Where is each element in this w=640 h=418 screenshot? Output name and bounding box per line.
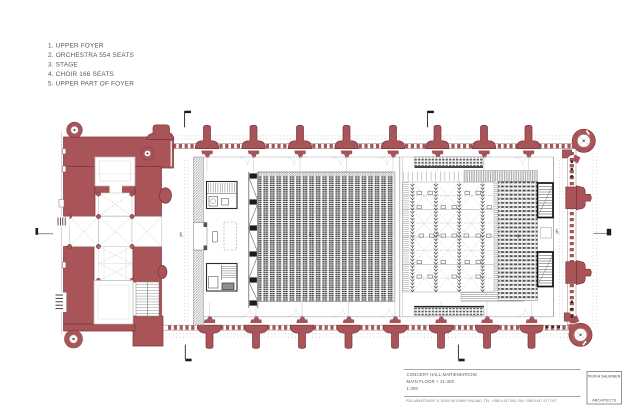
svg-text:3. STAGE: 3. STAGE: [48, 62, 78, 69]
svg-text:5.: 5.: [180, 233, 184, 239]
svg-text:CONCERT HALL MARIENKIRCHE: CONCERT HALL MARIENKIRCHE: [407, 372, 478, 377]
svg-text:PEKKA SALMINEN: PEKKA SALMINEN: [588, 375, 621, 379]
svg-text:4.: 4.: [517, 234, 521, 240]
svg-text:5.: 5.: [556, 230, 560, 236]
svg-text:4. CHOIR 166 SEATS: 4. CHOIR 166 SEATS: [48, 71, 114, 78]
svg-text:PSA-ARKKITEHDIT 8, 00100 HELSI: PSA-ARKKITEHDIT 8, 00100 HELSINKI FINLAN…: [406, 399, 557, 403]
svg-text:3.: 3.: [436, 232, 440, 238]
svg-text:5. UPPER PART OF FOYER: 5. UPPER PART OF FOYER: [48, 81, 134, 88]
svg-text:1. UPPER FOYER: 1. UPPER FOYER: [48, 43, 104, 50]
svg-text:2.: 2.: [309, 232, 313, 238]
svg-text:1:300: 1:300: [407, 386, 419, 391]
svg-text:MAIN FLOOR + 21.300: MAIN FLOOR + 21.300: [407, 379, 455, 384]
svg-text:2. ORCHESTRA 554 SEATS: 2. ORCHESTRA 554 SEATS: [48, 52, 134, 59]
svg-text:ARCHITECTS: ARCHITECTS: [592, 398, 616, 402]
